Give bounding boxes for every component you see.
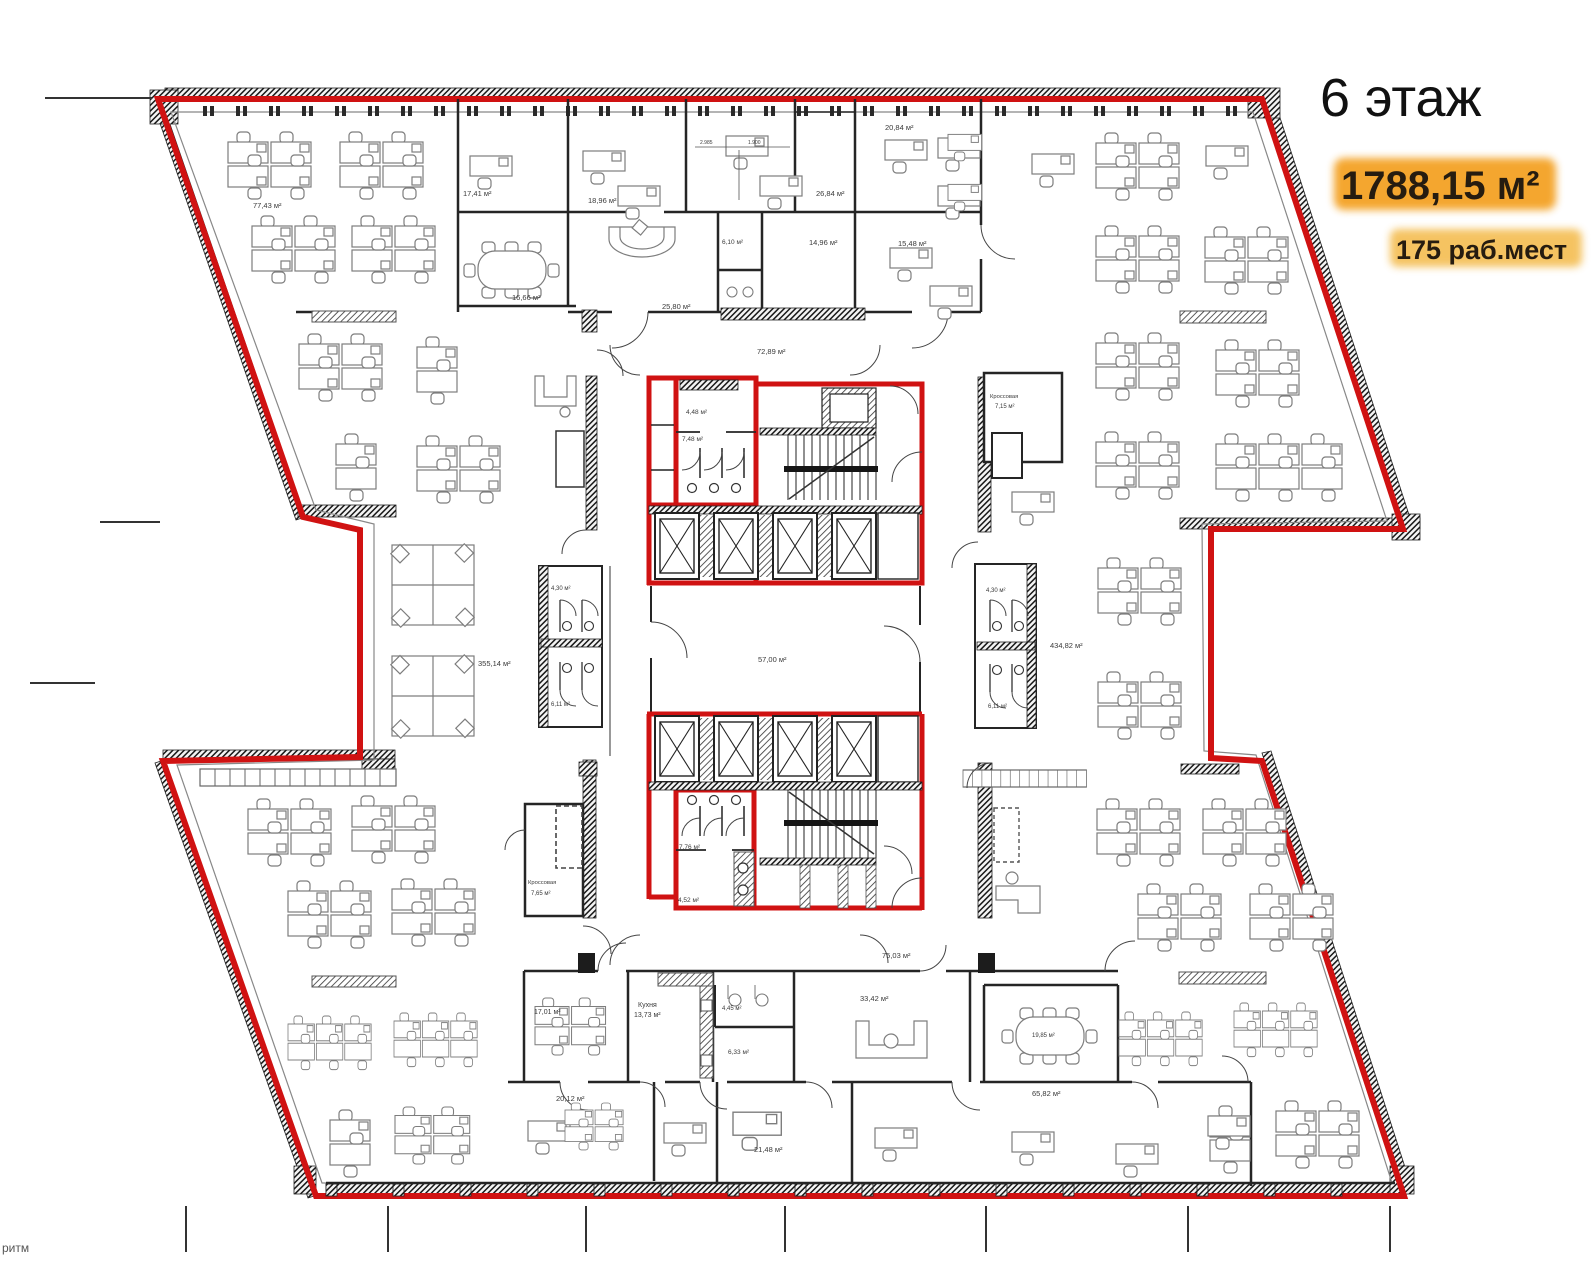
svg-text:15,48 м²: 15,48 м² [898, 239, 927, 248]
svg-text:355,14 м²: 355,14 м² [478, 659, 511, 668]
svg-text:Кухня: Кухня [638, 1002, 657, 1009]
svg-text:72,89 м²: 72,89 м² [757, 347, 786, 356]
svg-text:14,96 м²: 14,96 м² [809, 238, 838, 247]
svg-text:7,48 м²: 7,48 м² [682, 436, 704, 443]
svg-text:4,48 м²: 4,48 м² [686, 409, 708, 416]
svg-text:4,30 м²: 4,30 м² [551, 586, 570, 592]
svg-text:434,82 м²: 434,82 м² [1050, 641, 1083, 650]
svg-text:1.900: 1.900 [748, 140, 761, 146]
svg-text:7,76 м²: 7,76 м² [679, 844, 701, 851]
svg-text:4,45 м²: 4,45 м² [722, 1006, 741, 1012]
svg-text:25,80 м²: 25,80 м² [662, 302, 691, 311]
svg-text:4,30 м²: 4,30 м² [986, 588, 1005, 594]
svg-text:1788,15 м²: 1788,15 м² [1341, 164, 1540, 208]
svg-text:6 этаж: 6 этаж [1320, 68, 1482, 128]
svg-text:26,84 м²: 26,84 м² [816, 189, 845, 198]
svg-text:20,84 м²: 20,84 м² [885, 123, 914, 132]
svg-text:4,52 м²: 4,52 м² [678, 897, 700, 904]
svg-text:6,33 м²: 6,33 м² [728, 1049, 750, 1056]
svg-text:57,00 м²: 57,00 м² [758, 655, 787, 664]
svg-text:ритм: ритм [2, 1241, 29, 1255]
svg-text:7,65 м²: 7,65 м² [531, 891, 550, 897]
svg-text:6,11 м²: 6,11 м² [551, 702, 570, 708]
svg-text:21,48 м²: 21,48 м² [754, 1145, 783, 1154]
svg-text:16,66 м²: 16,66 м² [512, 293, 541, 302]
svg-text:17,41 м²: 17,41 м² [463, 189, 492, 198]
svg-text:19,85 м²: 19,85 м² [1032, 1033, 1055, 1039]
svg-text:77,43 м²: 77,43 м² [253, 201, 282, 210]
svg-text:Кроссовая: Кроссовая [528, 880, 556, 886]
svg-text:6,10 м²: 6,10 м² [722, 239, 744, 246]
svg-text:2.985: 2.985 [700, 140, 713, 146]
svg-text:175 раб.мест: 175 раб.мест [1396, 235, 1567, 265]
svg-text:13,73 м²: 13,73 м² [634, 1012, 661, 1019]
svg-text:75,03 м²: 75,03 м² [882, 951, 911, 960]
svg-text:18,96 м²: 18,96 м² [588, 196, 617, 205]
svg-text:65,82 м²: 65,82 м² [1032, 1089, 1061, 1098]
svg-text:7,15 м²: 7,15 м² [995, 404, 1014, 410]
svg-text:6,11 м²: 6,11 м² [988, 704, 1007, 710]
svg-text:20,12 м²: 20,12 м² [556, 1094, 585, 1103]
svg-text:33,42 м²: 33,42 м² [860, 994, 889, 1003]
svg-text:17,01 м²: 17,01 м² [534, 1009, 561, 1016]
svg-text:Кроссовая: Кроссовая [990, 394, 1018, 400]
